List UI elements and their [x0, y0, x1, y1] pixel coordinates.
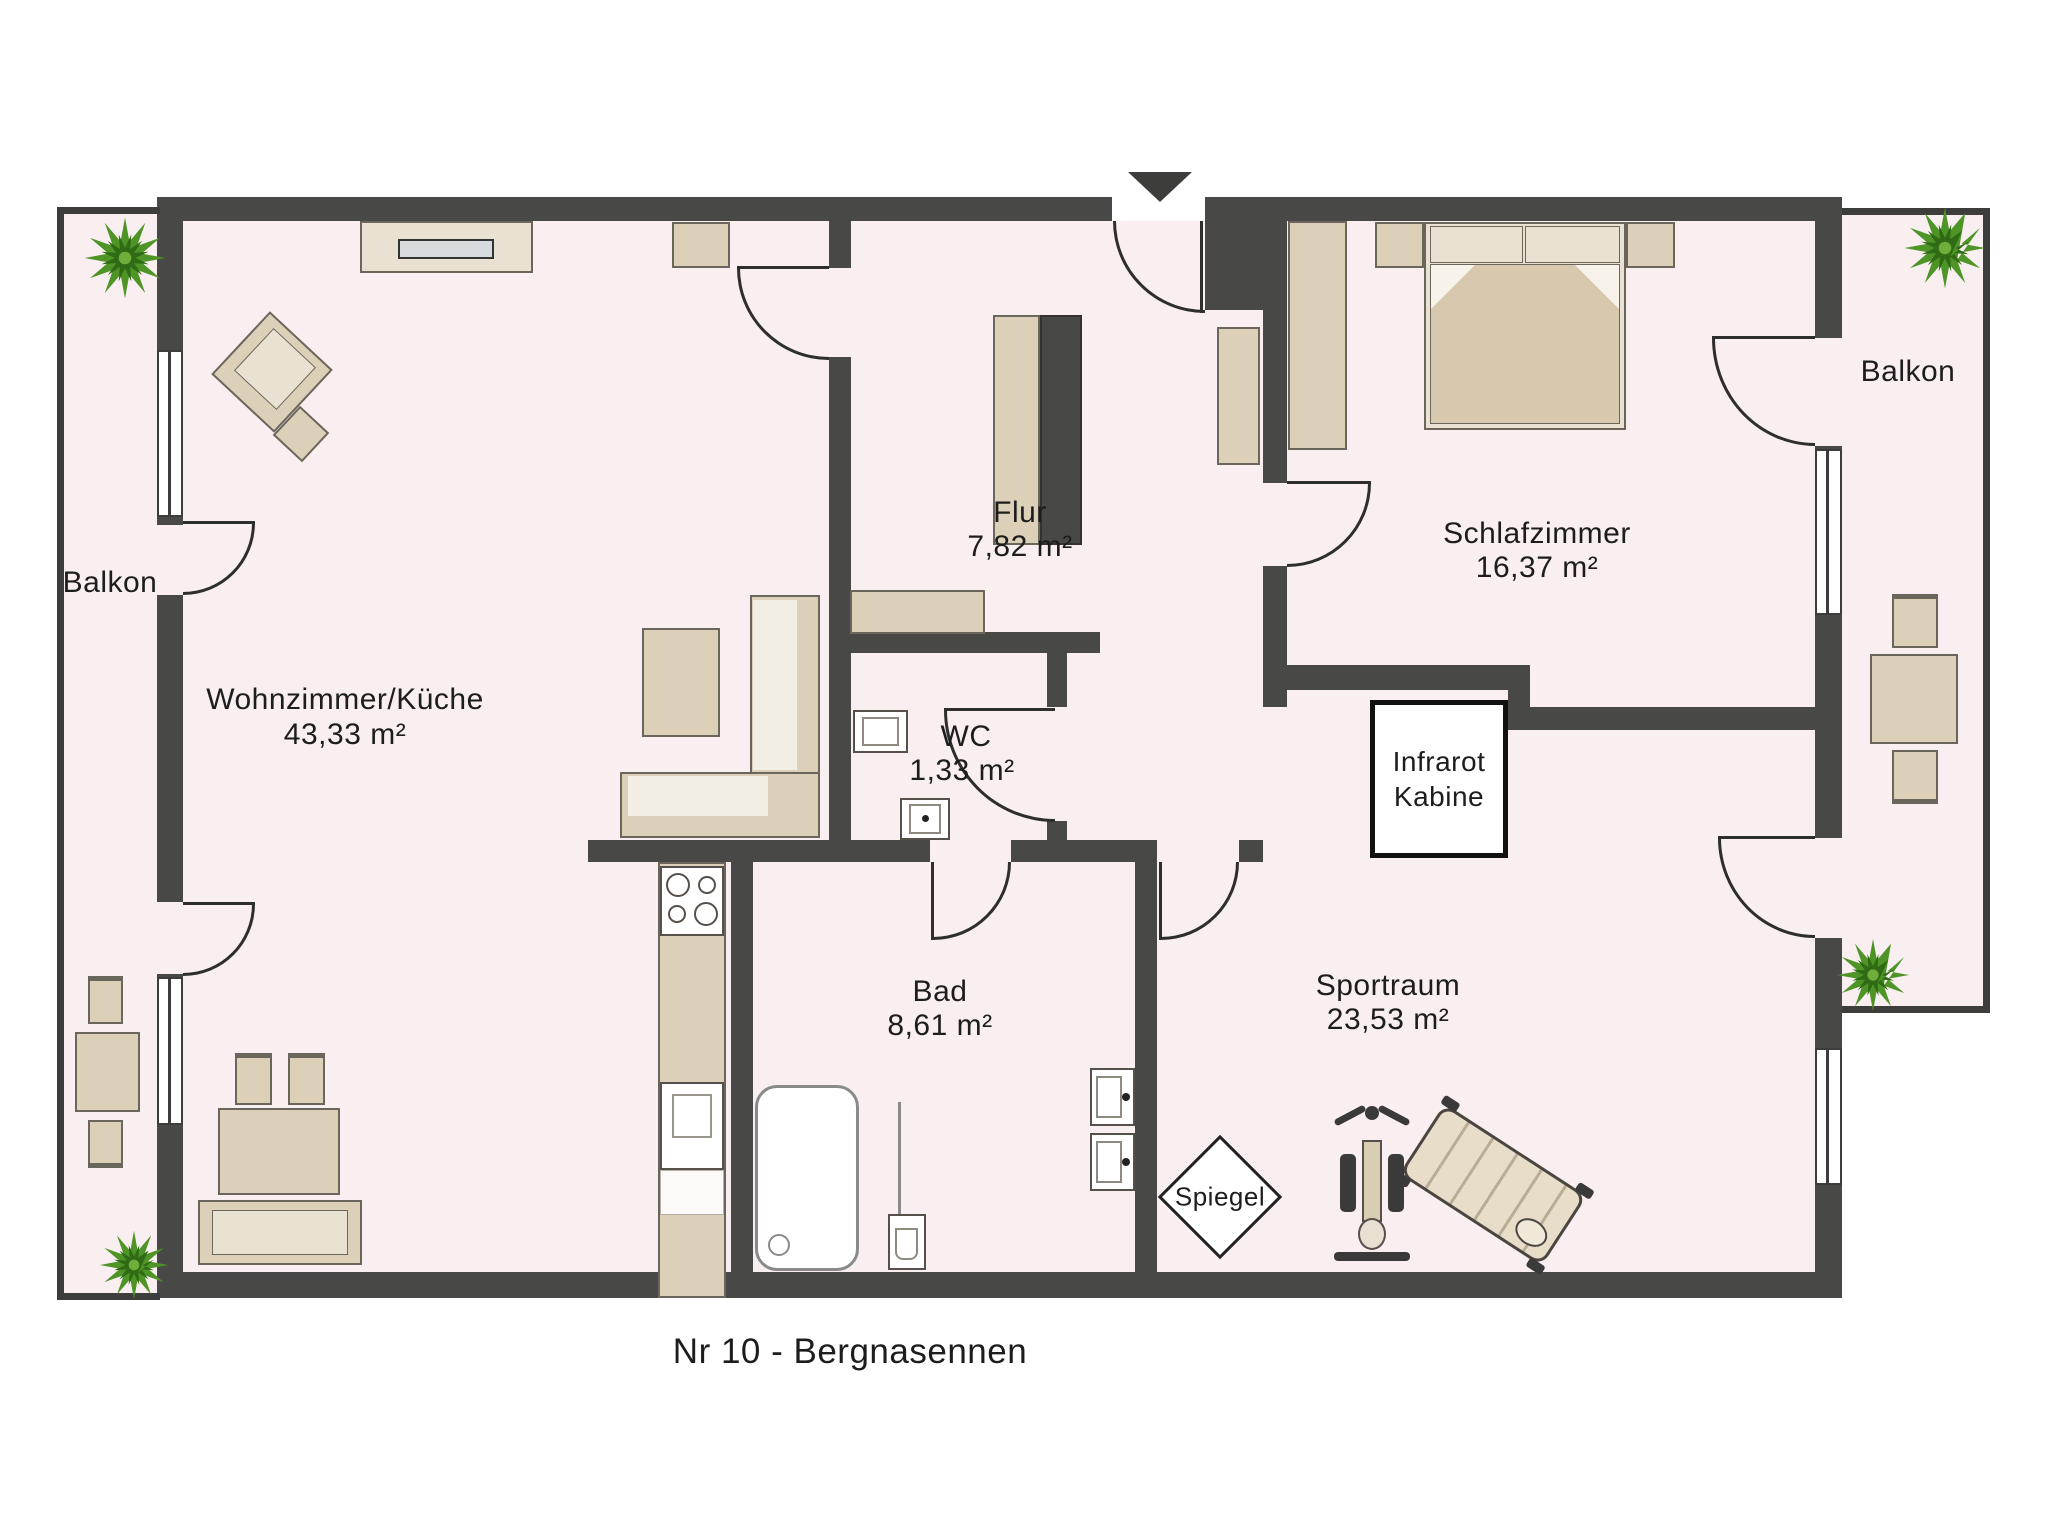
balcony-table	[1870, 654, 1958, 744]
shower-drain	[768, 1234, 790, 1256]
crosstrainer-handle	[1377, 1104, 1410, 1126]
wall	[829, 357, 851, 653]
label-infrarot-line2: Kabine	[1394, 781, 1484, 813]
door-leaf	[1200, 221, 1203, 313]
room-area-wc: 1,33 m²	[909, 754, 1014, 788]
room-area-sportraum: 23,53 m²	[1327, 1003, 1449, 1037]
balcony-wall	[1983, 208, 1990, 1013]
room-area-schlafzimmer: 16,37 m²	[1476, 551, 1598, 585]
door-leaf	[1712, 336, 1815, 339]
wall	[1011, 840, 1157, 862]
shower-glass	[898, 1102, 901, 1222]
sheet-fold	[1575, 265, 1619, 309]
pillow	[1430, 226, 1523, 263]
wall	[157, 517, 183, 525]
wall	[1815, 1185, 1842, 1298]
pillow	[1525, 226, 1620, 263]
door-leaf	[931, 862, 934, 940]
chair	[235, 1053, 272, 1105]
tv-screen	[398, 239, 494, 259]
door-leaf	[1718, 836, 1815, 839]
burner	[666, 873, 690, 897]
wall	[157, 197, 1112, 221]
room-area-flur: 7,82 m²	[967, 530, 1072, 564]
bench-cushion	[212, 1210, 348, 1255]
crosstrainer-seat	[1358, 1218, 1386, 1250]
wc-sink-basin	[862, 717, 899, 746]
crosstrainer-body	[1362, 1140, 1382, 1222]
burner	[668, 905, 686, 923]
room-label-balkon-left: Balkon	[63, 566, 158, 600]
wall	[829, 653, 851, 862]
wall	[1135, 862, 1157, 1272]
crosstrainer-base	[1334, 1252, 1410, 1261]
door-leaf	[944, 708, 1055, 711]
wall	[157, 595, 183, 902]
faucet-dot	[1122, 1093, 1130, 1101]
door-leaf	[1159, 862, 1162, 940]
wall	[588, 840, 930, 862]
door-leaf	[183, 902, 255, 905]
label-infrarot-line1: Infrarot	[1393, 746, 1486, 778]
room-area-bad: 8,61 m²	[887, 1009, 992, 1043]
window	[157, 350, 183, 517]
wall	[829, 632, 1100, 653]
chair	[88, 976, 123, 1024]
wall	[1263, 221, 1287, 483]
door-leaf	[183, 521, 255, 524]
balcony-table	[75, 1032, 140, 1112]
sheet-fold	[1431, 265, 1475, 309]
wall	[1263, 665, 1530, 690]
washbasin-bowl	[1096, 1076, 1122, 1118]
wall	[1047, 653, 1067, 707]
burner	[698, 876, 716, 894]
plant-icon	[1833, 935, 1913, 1015]
wardrobe	[1288, 221, 1347, 450]
chair	[288, 1053, 325, 1105]
crosstrainer-handle	[1333, 1104, 1366, 1126]
wall	[731, 862, 753, 1272]
room-label-wc: WC	[941, 720, 992, 754]
room-label-wohnzimmer: Wohnzimmer/Küche	[206, 683, 484, 717]
dining-table	[218, 1108, 340, 1195]
crosstrainer-post	[1365, 1106, 1379, 1120]
plant-icon	[1900, 203, 1990, 293]
coffee-table	[642, 628, 720, 737]
room-label-balkon-right: Balkon	[1861, 355, 1956, 389]
plan-title: Nr 10 - Bergnasennen	[673, 1332, 1027, 1372]
balcony-wall	[57, 207, 64, 1300]
kitchen-worktop	[660, 1170, 724, 1215]
room-label-bad: Bad	[913, 975, 968, 1009]
room-label-sportraum: Sportraum	[1316, 969, 1461, 1003]
plant-icon	[80, 213, 170, 303]
chair	[1892, 750, 1938, 804]
floor-plan: Balkon Wohnzimmer/Küche 43,33 m² Flur 7,…	[0, 0, 2048, 1538]
window	[157, 977, 183, 1125]
cabinet	[672, 222, 730, 268]
faucet-dot	[1122, 1158, 1130, 1166]
bad-toilet-bowl	[895, 1228, 918, 1260]
crosstrainer-pedal	[1340, 1154, 1356, 1212]
chair	[1892, 594, 1938, 648]
nightstand	[1375, 222, 1424, 268]
sofa-seat	[753, 600, 797, 770]
window	[1815, 449, 1842, 615]
plant-icon	[96, 1227, 172, 1303]
washbasin-bowl	[1096, 1141, 1122, 1183]
kitchen-sink-basin	[672, 1094, 712, 1138]
door-leaf	[737, 266, 829, 269]
wall	[1815, 197, 1842, 338]
wall	[1239, 840, 1263, 862]
sofa-seat	[628, 776, 768, 816]
wall	[157, 1272, 1842, 1298]
wall	[1205, 197, 1842, 221]
room-area-wohnzimmer: 43,33 m²	[284, 718, 406, 752]
label-spiegel: Spiegel	[1175, 1182, 1265, 1213]
wc-flush-dot	[922, 815, 929, 822]
window	[1815, 1048, 1842, 1185]
chair	[88, 1120, 123, 1168]
dresser	[1217, 327, 1260, 465]
room-label-schlafzimmer: Schlafzimmer	[1443, 517, 1631, 551]
sideboard	[850, 590, 985, 634]
entrance-arrow-icon	[1128, 172, 1192, 202]
nightstand	[1626, 222, 1675, 268]
wall	[1205, 221, 1263, 310]
wall	[829, 221, 851, 268]
burner	[694, 902, 718, 926]
door-leaf	[1287, 481, 1371, 484]
wall	[1508, 707, 1842, 730]
room-label-flur: Flur	[993, 496, 1047, 530]
infrarot-kabine-box	[1370, 700, 1508, 858]
